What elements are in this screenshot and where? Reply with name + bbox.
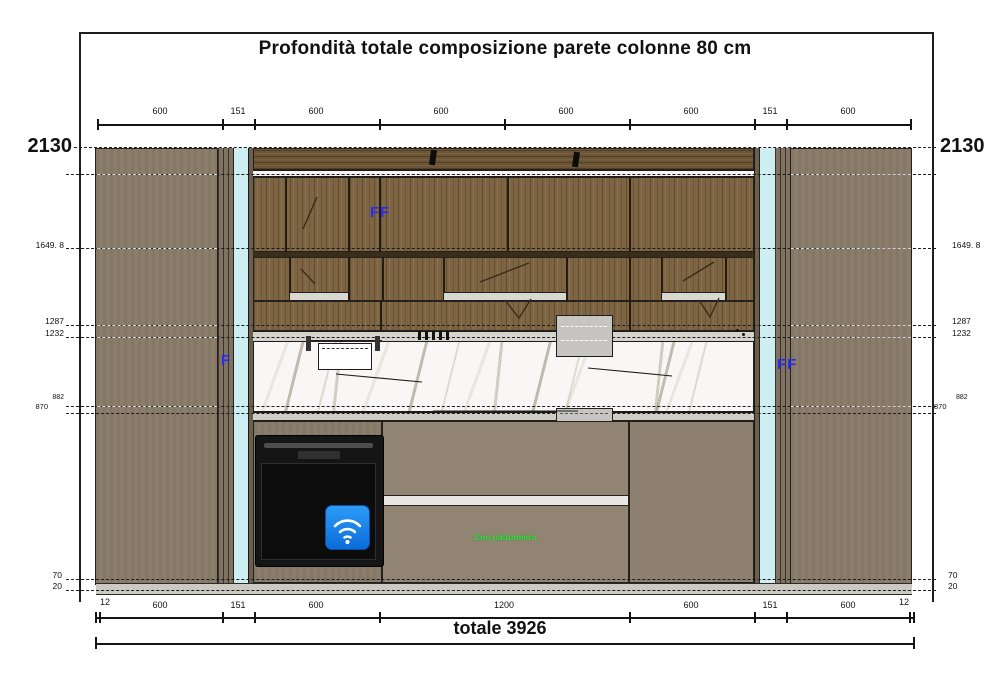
ref-label-20-right: 20 [948, 581, 957, 591]
tick [222, 119, 224, 130]
ref-label-1232-right: 1232 [952, 328, 971, 338]
ref-label-1649-left: 1649. 8 [14, 240, 64, 250]
dim-label: 600 [840, 600, 855, 610]
oven-display [298, 451, 340, 459]
ref-line-overlay [97, 325, 217, 326]
socket-box [556, 408, 613, 422]
dim-label: 600 [558, 106, 573, 116]
ref-line-20 [66, 590, 936, 591]
total-dimension-line [95, 643, 913, 645]
dim-label: 151 [230, 106, 245, 116]
cubby-shelf [444, 292, 566, 301]
oven-handle [264, 443, 373, 448]
dim-label: 151 [230, 600, 245, 610]
wifi-icon [326, 506, 369, 549]
hutch-lower-band [253, 301, 754, 331]
tick [910, 119, 912, 130]
tick [222, 612, 224, 623]
door-divider [348, 177, 350, 252]
rail-dot [736, 329, 739, 332]
tick [754, 612, 756, 623]
ref-line-overlay [97, 248, 217, 249]
cubby-divider [725, 257, 727, 301]
height-label-left: 2130 [14, 135, 72, 158]
cubby-shelf [290, 292, 348, 301]
tick [909, 612, 911, 623]
door-divider [507, 177, 509, 252]
wall-module-box [556, 315, 613, 357]
tick [913, 637, 915, 649]
upper-doors-row [253, 177, 754, 252]
ref-line-overlay [97, 406, 217, 407]
right-tall-column [790, 148, 912, 585]
paper-roll-dashed-line [322, 348, 368, 349]
ref-line-overlay [97, 337, 217, 338]
tick [913, 612, 915, 623]
tick [629, 119, 631, 130]
dim-label: 12 [899, 597, 909, 607]
tick [504, 119, 506, 130]
module-dashed-line [561, 326, 607, 327]
ref-label-20-left: 20 [30, 581, 62, 591]
ref-label-882-left: 882 [40, 394, 64, 401]
roll-holder-bracket [306, 336, 311, 351]
ref-line-overlay [791, 248, 911, 249]
dim-label: 600 [840, 106, 855, 116]
dim-label: 12 [100, 597, 110, 607]
dim-label: 151 [762, 106, 777, 116]
tick [379, 119, 381, 130]
tick [254, 612, 256, 623]
ref-label-1649-right: 1649. 8 [952, 240, 980, 250]
cubby-divider [348, 257, 350, 301]
tick [754, 119, 756, 130]
base-right-door [629, 421, 754, 583]
plinth [96, 583, 912, 595]
band-divider [629, 301, 631, 331]
roll-holder-rod [306, 340, 382, 342]
dim-label: 600 [152, 106, 167, 116]
roll-holder-bracket [375, 336, 380, 351]
hook-icon [418, 331, 421, 340]
ref-label-1232-left: 1232 [14, 328, 64, 338]
cubby-divider [382, 257, 384, 301]
ref-label-70-right: 70 [948, 570, 957, 580]
ff-label-upper: FF [370, 204, 390, 221]
ref-line-70 [66, 579, 936, 580]
base-drawer-bottom [382, 505, 629, 583]
ref-line-overlay [791, 174, 911, 175]
drawer-note: Con pattumiera [474, 532, 536, 542]
dim-label: 151 [762, 600, 777, 610]
ref-line-870 [66, 413, 936, 414]
ref-label-870-left: 870 [22, 402, 48, 411]
ref-label-1287-right: 1287 [952, 316, 971, 326]
dim-label: 600 [683, 600, 698, 610]
cubby-divider [566, 257, 568, 301]
dim-label: 600 [433, 106, 448, 116]
tick [95, 612, 97, 623]
ref-line-overlay [97, 174, 217, 175]
tick [95, 637, 97, 649]
ref-label-70-left: 70 [30, 570, 62, 580]
module-dashed-line [561, 340, 607, 341]
tick [97, 119, 99, 130]
ref-label-882-right: 882 [956, 394, 968, 401]
dim-label: 600 [152, 600, 167, 610]
ref-line-2130 [74, 147, 936, 148]
rail-dot [742, 333, 745, 336]
dim-label: 600 [308, 600, 323, 610]
ff-label-left: F [221, 352, 231, 369]
dim-label: 1200 [494, 600, 514, 610]
elevation-drawing: Profondità totale composizione parete co… [0, 0, 1000, 686]
tick [99, 612, 101, 623]
ref-line-overlay [791, 325, 911, 326]
cubby-shelf [662, 292, 725, 301]
door-divider [629, 177, 631, 252]
tick [786, 119, 788, 130]
tick [786, 612, 788, 623]
drawer-gap [382, 496, 629, 505]
dim-label: 600 [683, 106, 698, 116]
drawing-title: Profondità totale composizione parete co… [80, 38, 930, 60]
hook-icon [425, 331, 428, 340]
dim-label: 600 [308, 106, 323, 116]
total-dimension-label: totale 3926 [300, 618, 700, 639]
wifi-badge [325, 505, 370, 550]
hutch-top-panel [253, 148, 754, 170]
tick [254, 119, 256, 130]
socket-dashed-line [560, 413, 608, 414]
ff-label-right: FF [777, 356, 797, 373]
ref-line-overlay [791, 406, 911, 407]
height-label-right: 2130 [940, 135, 985, 158]
left-tall-column [95, 148, 218, 585]
band-divider [380, 301, 382, 331]
door-divider [285, 177, 287, 252]
base-drawer-top [382, 421, 629, 496]
hook-icon [432, 331, 435, 340]
cubby-divider [629, 257, 631, 301]
hook-icon [439, 331, 442, 340]
ref-line-overlay [791, 337, 911, 338]
hook-icon [446, 331, 449, 340]
ref-label-1287-left: 1287 [14, 316, 64, 326]
